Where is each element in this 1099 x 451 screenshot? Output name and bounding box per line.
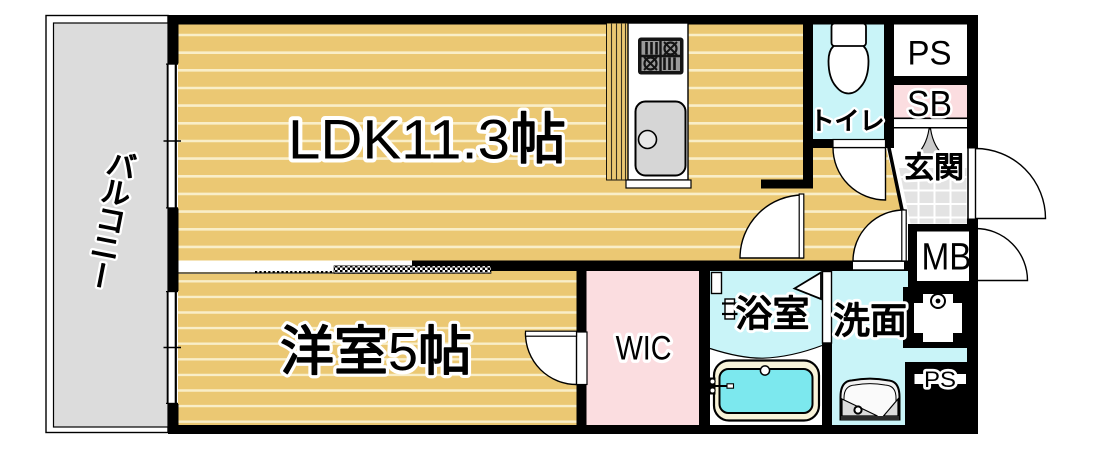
svg-text:PS: PS xyxy=(924,367,956,392)
svg-text:LDK11.3: LDK11.3 xyxy=(288,108,510,171)
svg-text:PS: PS xyxy=(908,35,952,73)
svg-text:5: 5 xyxy=(388,322,418,382)
svg-text:MB: MB xyxy=(922,237,972,279)
svg-text:SB: SB xyxy=(907,83,952,124)
svg-text:WIC: WIC xyxy=(616,330,672,368)
